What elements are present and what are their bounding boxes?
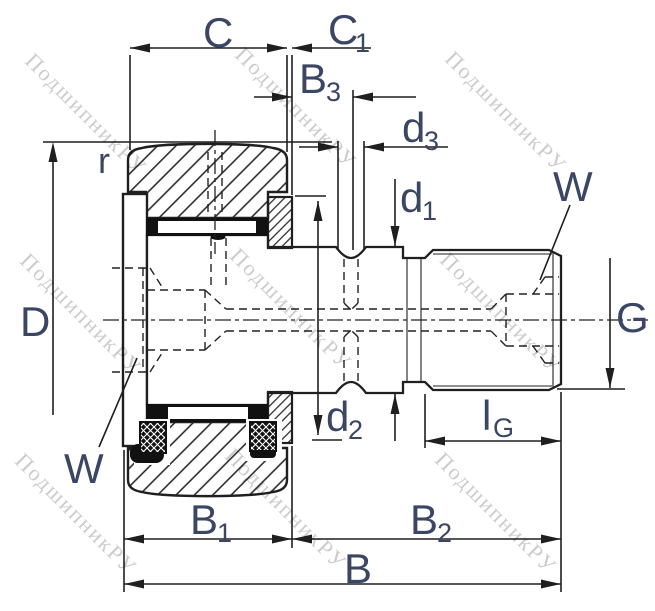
dim-label-d3: d — [402, 104, 425, 151]
dim-label-C1-sub: 1 — [355, 28, 370, 58]
dim-label-C: C — [203, 9, 233, 56]
dim-label-B1-sub: 1 — [217, 518, 232, 548]
dim-label-G: G — [616, 294, 649, 341]
dim-label-lG-sub: G — [493, 413, 514, 443]
dim-label-d2: d — [326, 393, 349, 440]
dim-label-B2-sub: 2 — [437, 518, 452, 548]
technical-drawing: C C 1 B 3 d 3 d 1 r D W W G l G d 2 B 1 … — [0, 0, 655, 611]
dim-label-W-top: W — [553, 163, 593, 210]
dim-label-d1: d — [400, 174, 423, 221]
dim-label-d1-sub: 1 — [422, 196, 437, 226]
dim-label-d2-sub: 2 — [348, 415, 363, 445]
dim-label-B3-sub: 3 — [326, 77, 341, 107]
dim-label-B1: B — [190, 496, 218, 543]
drawing-canvas: C C 1 B 3 d 3 d 1 r D W W G l G d 2 B 1 … — [0, 0, 655, 611]
seal-left — [130, 419, 170, 465]
lube-hole-opening — [211, 234, 226, 240]
dim-label-r: r — [98, 140, 110, 181]
dim-label-lG: l — [482, 392, 491, 439]
dim-label-d3-sub: 3 — [424, 126, 439, 156]
needle-rollers-top — [146, 218, 268, 236]
dim-label-B: B — [344, 545, 372, 592]
dim-label-C1: C — [328, 6, 358, 53]
dim-label-D: D — [20, 298, 50, 345]
dim-label-B2: B — [410, 496, 438, 543]
dim-label-W-bottom: W — [64, 445, 104, 492]
seal-right — [246, 419, 282, 461]
dim-label-B3: B — [299, 55, 327, 102]
